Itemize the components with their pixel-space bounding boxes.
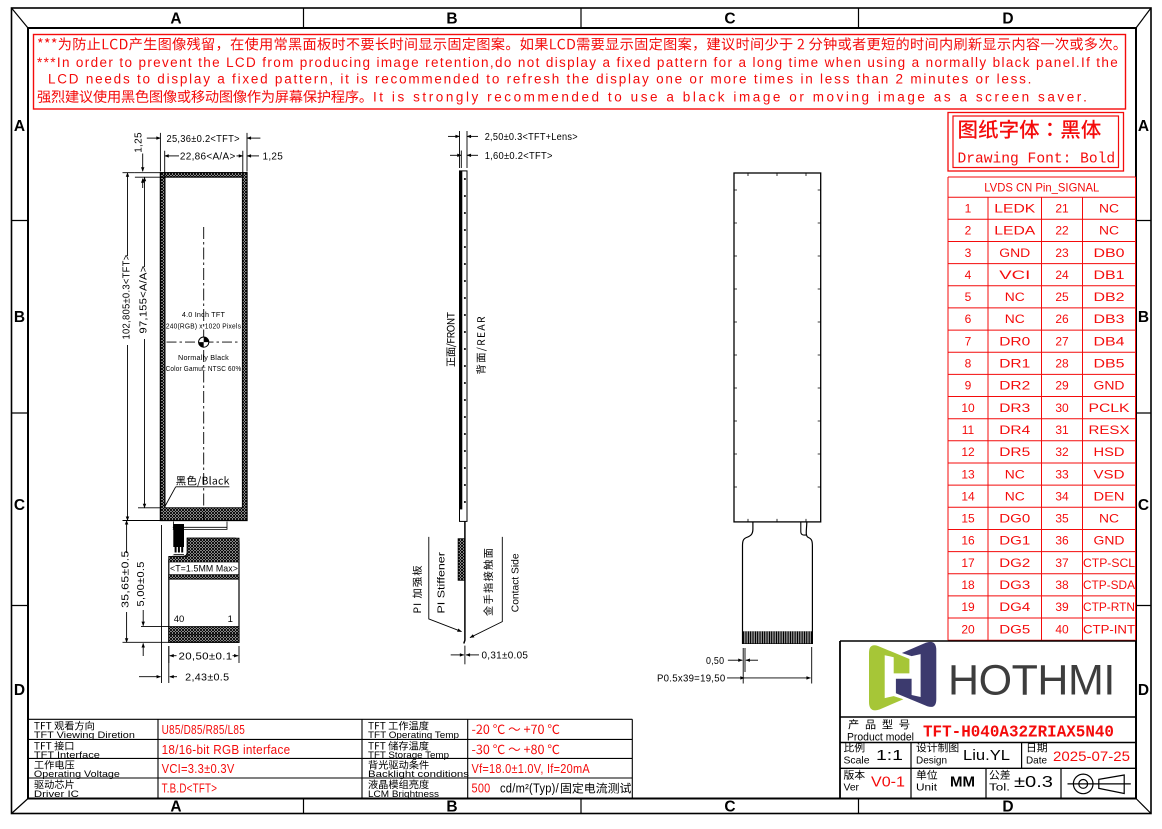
- svg-text:V0-1: V0-1: [871, 775, 905, 791]
- svg-text:10: 10: [961, 401, 975, 415]
- svg-text:D: D: [14, 682, 25, 699]
- svg-text:MM: MM: [950, 775, 975, 791]
- svg-text:36: 36: [1055, 534, 1069, 548]
- svg-text:DG1: DG1: [999, 534, 1030, 548]
- svg-text:CTP-SDA: CTP-SDA: [1083, 578, 1135, 592]
- svg-text:LEDK: LEDK: [994, 202, 1035, 216]
- svg-text:DB1: DB1: [1094, 268, 1125, 282]
- svg-text:35,65±0.5: 35,65±0.5: [121, 550, 132, 608]
- svg-text:Driver IC: Driver IC: [34, 789, 79, 799]
- svg-text:NC: NC: [1099, 202, 1119, 216]
- svg-text:HSD: HSD: [1094, 445, 1125, 459]
- svg-text:GND: GND: [1094, 534, 1125, 548]
- svg-text:4.0 Inch TFT: 4.0 Inch TFT: [182, 312, 226, 319]
- svg-text:102,805±0.3<TFT>: 102,805±0.3<TFT>: [122, 255, 133, 340]
- svg-text:***In order to prevent the LCD: ***In order to prevent the LCD from prod…: [37, 55, 1119, 70]
- svg-text:12: 12: [961, 445, 975, 459]
- svg-text:1,25: 1,25: [263, 152, 284, 163]
- svg-text:B: B: [446, 11, 457, 28]
- svg-text:DB0: DB0: [1094, 246, 1125, 260]
- svg-text:CTP-RTN: CTP-RTN: [1083, 600, 1135, 614]
- svg-text:NC: NC: [1099, 224, 1119, 238]
- svg-text:GND: GND: [999, 246, 1030, 260]
- svg-text:5: 5: [965, 290, 972, 304]
- svg-text:B: B: [1138, 309, 1149, 326]
- svg-text:PI Stiffener: PI Stiffener: [437, 551, 448, 613]
- svg-text:34: 34: [1055, 489, 1069, 503]
- svg-text:0,31±0.05: 0,31±0.05: [482, 651, 529, 662]
- svg-text:Drawing Font: Bold: Drawing Font: Bold: [958, 152, 1116, 168]
- svg-text:27: 27: [1055, 334, 1069, 348]
- svg-text:35: 35: [1055, 512, 1069, 526]
- svg-text:28: 28: [1055, 357, 1069, 371]
- svg-text:21: 21: [1055, 202, 1069, 216]
- svg-text:2: 2: [965, 224, 972, 238]
- svg-text:VCI=3.3±0.3V: VCI=3.3±0.3V: [162, 762, 235, 776]
- svg-text:Date: Date: [1026, 756, 1047, 767]
- svg-text:A: A: [1138, 118, 1149, 135]
- svg-text:It is strongly recommended to: It is strongly recommended to use a blac…: [373, 89, 1089, 104]
- svg-text:DB2: DB2: [1094, 290, 1125, 304]
- svg-text:C: C: [14, 497, 25, 514]
- svg-text:26: 26: [1055, 312, 1069, 326]
- svg-text:22: 22: [1055, 224, 1069, 238]
- svg-text:1,60±0.2<TFT>: 1,60±0.2<TFT>: [485, 151, 553, 162]
- svg-text:D: D: [1138, 682, 1149, 699]
- svg-text:T.B.D<TFT>: T.B.D<TFT>: [162, 782, 218, 796]
- svg-text:B: B: [14, 309, 25, 326]
- svg-text:A: A: [170, 799, 181, 816]
- svg-text:31: 31: [1055, 423, 1069, 437]
- svg-text:D: D: [1002, 11, 1013, 28]
- svg-text:2025-07-25: 2025-07-25: [1053, 749, 1130, 764]
- svg-text:NC: NC: [1005, 312, 1025, 326]
- svg-text:DG4: DG4: [999, 600, 1030, 614]
- svg-text:7: 7: [965, 334, 972, 348]
- svg-text:22,86<A/A>: 22,86<A/A>: [180, 152, 236, 163]
- svg-text:Tol.: Tol.: [989, 783, 1010, 794]
- svg-text:LCD needs to display a fixed p: LCD needs to display a fixed pattern, it…: [48, 71, 1033, 86]
- svg-text:U85/D85/R85/L85: U85/D85/R85/L85: [162, 723, 245, 737]
- svg-text:4: 4: [965, 268, 972, 282]
- svg-text:16: 16: [961, 534, 975, 548]
- svg-text:Liu.YL: Liu.YL: [963, 748, 1010, 764]
- svg-text:5,00±0.5: 5,00±0.5: [136, 561, 147, 606]
- svg-text:D: D: [1002, 799, 1013, 816]
- svg-text:17: 17: [961, 556, 975, 570]
- svg-text:cd/m²(Typ)/: cd/m²(Typ)/: [500, 782, 559, 796]
- svg-text:40: 40: [174, 614, 185, 625]
- svg-text:DR5: DR5: [999, 445, 1030, 459]
- svg-text:DG3: DG3: [999, 578, 1030, 592]
- svg-text:HOTHMI: HOTHMI: [948, 657, 1115, 705]
- svg-text:2,43±0.5: 2,43±0.5: [185, 672, 229, 683]
- svg-text:P0.5x39=19,50: P0.5x39=19,50: [657, 674, 726, 685]
- svg-text:37: 37: [1055, 556, 1069, 570]
- svg-text:<T=1.5MM Max>: <T=1.5MM Max>: [170, 564, 238, 574]
- svg-text:TFT Viewing Diretion: TFT Viewing Diretion: [34, 730, 135, 740]
- svg-text:NC: NC: [1099, 512, 1119, 526]
- svg-text:DR2: DR2: [999, 379, 1030, 393]
- svg-text:CTP-INT: CTP-INT: [1083, 622, 1136, 636]
- svg-text:DEN: DEN: [1094, 489, 1125, 503]
- svg-text:Design: Design: [916, 756, 947, 767]
- svg-text:C: C: [1138, 497, 1149, 514]
- svg-text:A: A: [14, 118, 25, 135]
- svg-text:C: C: [724, 799, 735, 816]
- svg-text:GND: GND: [1094, 379, 1125, 393]
- svg-text:38: 38: [1055, 578, 1069, 592]
- svg-text:6: 6: [965, 312, 972, 326]
- svg-text:C: C: [724, 11, 735, 28]
- svg-text:TFT Interface: TFT Interface: [34, 750, 100, 760]
- svg-text:Operating Voltage: Operating Voltage: [34, 769, 120, 779]
- svg-text:DG0: DG0: [999, 512, 1030, 526]
- svg-text:A: A: [170, 11, 181, 28]
- svg-text:CTP-SCL: CTP-SCL: [1083, 556, 1135, 570]
- svg-text:TFT-H040A32ZRIAX5N40: TFT-H040A32ZRIAX5N40: [923, 723, 1114, 742]
- svg-text:Normally Black: Normally Black: [178, 355, 229, 362]
- svg-text:Vf=18.0±1.0V, If=20mA: Vf=18.0±1.0V, If=20mA: [472, 762, 591, 776]
- svg-text:13: 13: [961, 467, 975, 481]
- svg-text:1: 1: [965, 202, 972, 216]
- svg-text:2,50±0.3<TFT+Lens>: 2,50±0.3<TFT+Lens>: [485, 132, 578, 143]
- svg-text:15: 15: [961, 512, 975, 526]
- svg-text:3: 3: [965, 246, 972, 260]
- svg-text:23: 23: [1055, 246, 1069, 260]
- svg-text:500: 500: [472, 782, 491, 796]
- svg-text:Backlight conditions: Backlight conditions: [368, 769, 469, 779]
- svg-text:PCLK: PCLK: [1089, 401, 1130, 415]
- svg-text:NC: NC: [1005, 489, 1025, 503]
- svg-text:Product model: Product model: [847, 732, 914, 744]
- svg-text:20,50±0.1: 20,50±0.1: [179, 651, 233, 662]
- svg-text:25,36±0.2<TFT>: 25,36±0.2<TFT>: [167, 134, 240, 145]
- svg-text:29: 29: [1055, 379, 1069, 393]
- svg-text:NC: NC: [1005, 290, 1025, 304]
- svg-text:LVDS CN Pin_SIGNAL: LVDS CN Pin_SIGNAL: [984, 180, 1099, 194]
- svg-text:9: 9: [965, 379, 972, 393]
- svg-text:±0.3: ±0.3: [1014, 774, 1053, 791]
- svg-text:240(RGB) x 1020 Pixels: 240(RGB) x 1020 Pixels: [166, 324, 241, 331]
- svg-text:30: 30: [1055, 401, 1069, 415]
- svg-text:97,155<A/A>: 97,155<A/A>: [139, 266, 150, 334]
- svg-text:24: 24: [1055, 268, 1069, 282]
- svg-text:32: 32: [1055, 445, 1069, 459]
- svg-text:20: 20: [961, 622, 975, 636]
- svg-text:14: 14: [961, 489, 975, 503]
- svg-text:Unit: Unit: [916, 783, 937, 794]
- svg-text:DR3: DR3: [999, 401, 1030, 415]
- svg-text:39: 39: [1055, 600, 1069, 614]
- svg-text:8: 8: [965, 357, 972, 371]
- svg-text:VSD: VSD: [1094, 467, 1125, 481]
- svg-text:DB4: DB4: [1094, 334, 1125, 348]
- svg-text:DR0: DR0: [999, 334, 1030, 348]
- svg-text:18: 18: [961, 578, 975, 592]
- svg-text:Color Gamut: NTSC 60%: Color Gamut: NTSC 60%: [166, 366, 242, 373]
- svg-text:LCM Brightness: LCM Brightness: [368, 789, 439, 799]
- svg-text:LEDA: LEDA: [994, 224, 1035, 238]
- svg-text:0,50: 0,50: [706, 656, 724, 667]
- svg-text:DB5: DB5: [1094, 357, 1125, 371]
- svg-text:RESX: RESX: [1089, 423, 1130, 437]
- svg-text:DR4: DR4: [999, 423, 1030, 437]
- svg-text:11: 11: [962, 423, 975, 437]
- svg-text:1:1: 1:1: [876, 748, 903, 764]
- svg-text:Scale: Scale: [844, 756, 870, 767]
- svg-text:18/16-bit RGB interface: 18/16-bit RGB interface: [162, 743, 291, 757]
- svg-text:25: 25: [1055, 290, 1069, 304]
- svg-text:DG5: DG5: [999, 622, 1030, 636]
- svg-text:B: B: [446, 799, 457, 816]
- svg-text:1,25: 1,25: [134, 132, 145, 153]
- svg-text:1: 1: [228, 614, 233, 625]
- svg-text:NC: NC: [1005, 467, 1025, 481]
- svg-text:33: 33: [1055, 467, 1069, 481]
- svg-text:DG2: DG2: [999, 556, 1030, 570]
- svg-text:Contact Side: Contact Side: [510, 553, 521, 612]
- svg-text:VCI: VCI: [999, 268, 1030, 282]
- svg-text:40: 40: [1055, 622, 1069, 636]
- svg-text:19: 19: [961, 600, 975, 614]
- svg-text:DR1: DR1: [999, 357, 1030, 371]
- svg-text:DB3: DB3: [1094, 312, 1125, 326]
- svg-text:Ver: Ver: [844, 783, 860, 794]
- svg-text:TFT Storage Temp: TFT Storage Temp: [368, 750, 449, 760]
- svg-text:TFT Operating Temp: TFT Operating Temp: [368, 730, 459, 740]
